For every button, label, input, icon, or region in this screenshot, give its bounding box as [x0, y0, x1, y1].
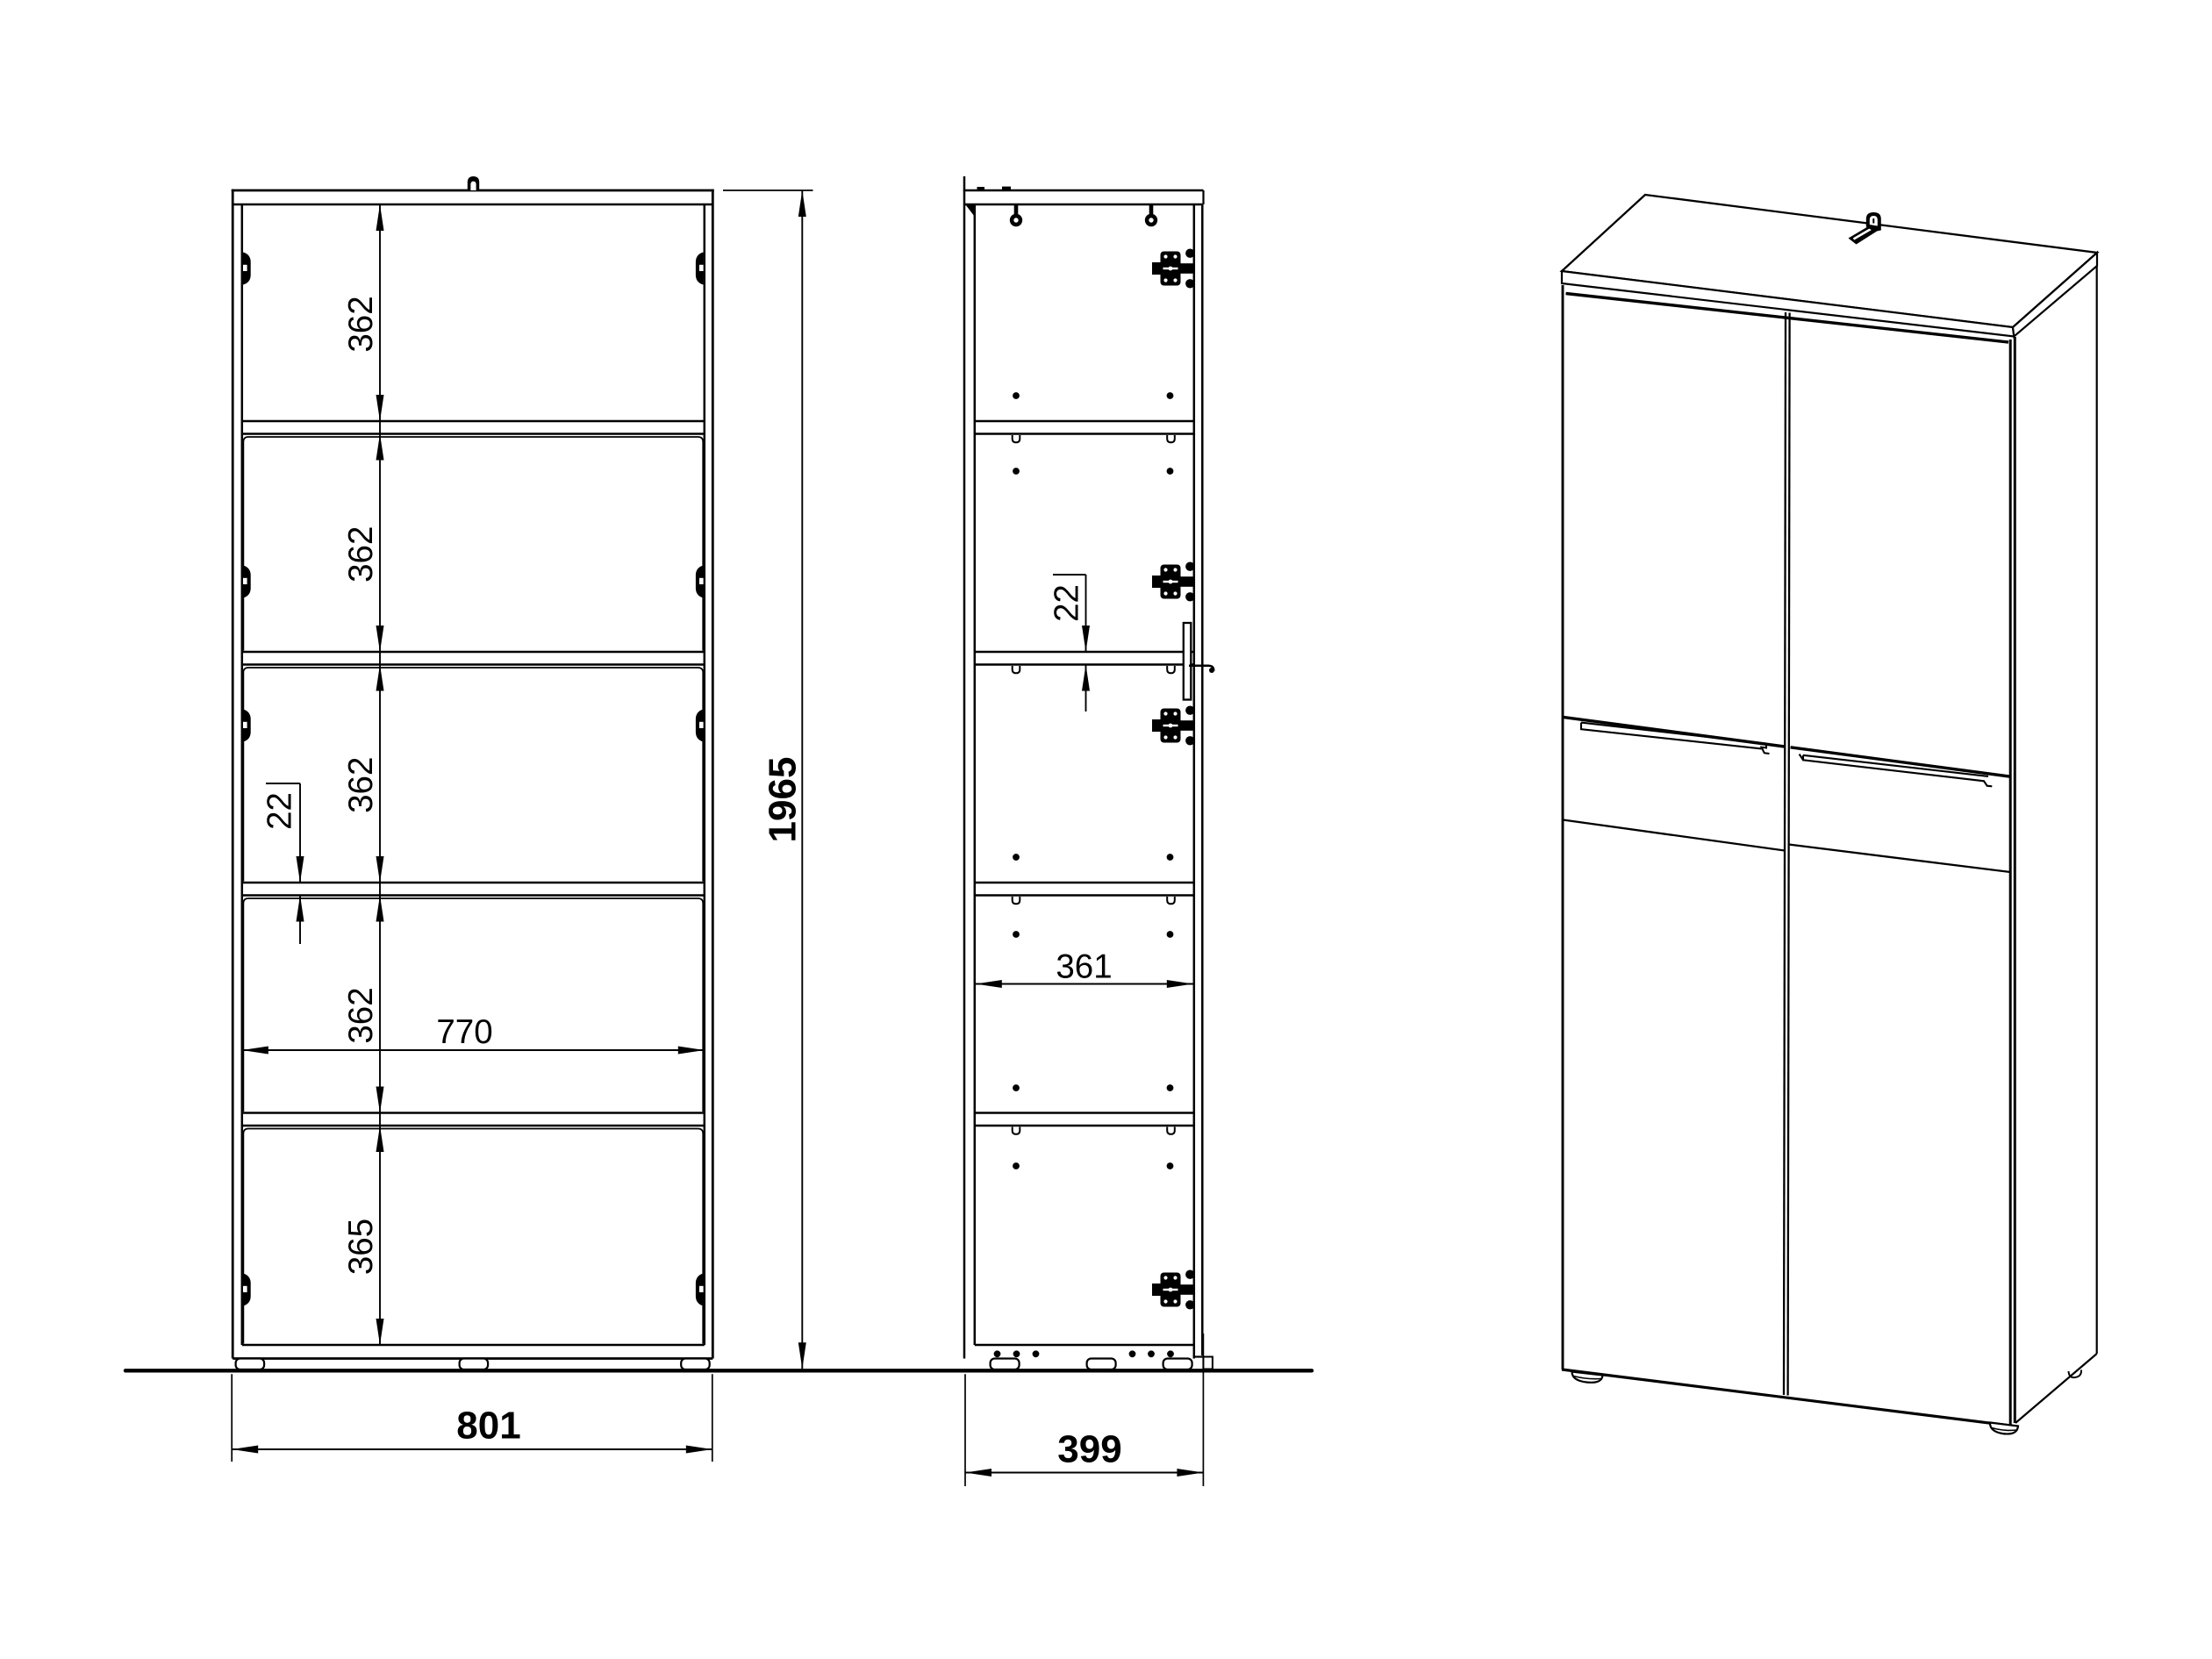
svg-text:362: 362 — [342, 296, 380, 352]
svg-text:362: 362 — [342, 987, 380, 1043]
svg-text:1965: 1965 — [761, 757, 804, 843]
svg-text:801: 801 — [456, 1405, 520, 1448]
svg-text:22: 22 — [1048, 584, 1085, 622]
svg-text:399: 399 — [1057, 1428, 1121, 1471]
svg-text:365: 365 — [342, 1219, 380, 1275]
svg-text:362: 362 — [342, 526, 380, 583]
svg-text:22: 22 — [261, 792, 299, 830]
svg-text:361: 361 — [1056, 948, 1112, 986]
svg-text:770: 770 — [436, 1013, 492, 1051]
svg-text:362: 362 — [342, 757, 380, 813]
